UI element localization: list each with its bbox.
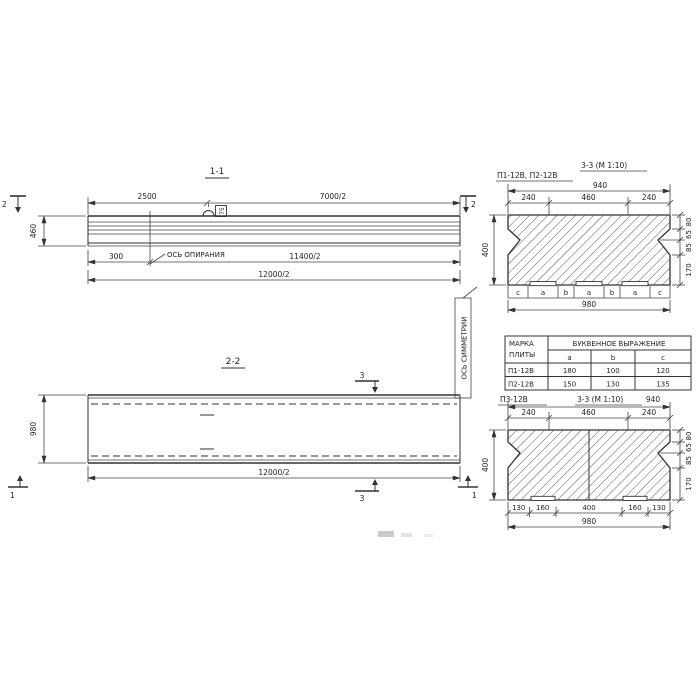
dim-160: 160 (628, 504, 641, 512)
section-title: 3-3 (М 1:10) (581, 161, 627, 170)
dim-support-and-half: 300 11400/2 (88, 250, 460, 266)
dim-240: 240 (642, 408, 657, 417)
dim-beam-height: 460 (29, 216, 86, 246)
dim-460: 460 (581, 408, 596, 417)
lifting-loop: 75 (203, 203, 227, 217)
dim-130: 130 (652, 504, 665, 512)
letter-a: a (541, 289, 545, 297)
dim-full-span: 12000/2 (88, 270, 460, 284)
symmetry-axis: ОСЬ СИММЕТРИИ (455, 287, 477, 398)
cut-label: 1 (10, 491, 15, 500)
dim-400: 400 (481, 243, 490, 258)
dim-940: 940 (646, 395, 661, 404)
dim-980: 980 (582, 300, 597, 309)
dim-460: 460 (581, 193, 596, 202)
dim-80: 80 (685, 432, 693, 441)
cut-mark-1-right: 1 (458, 475, 478, 500)
cell-b: 100 (606, 367, 619, 375)
section-1-1-view: 1-1 2 2 2500 7000/2 7 (2, 167, 476, 284)
letter-b: b (564, 289, 569, 297)
dim-980: 980 (582, 517, 597, 526)
bottom-groove (531, 496, 555, 500)
dim-12000-2: 12000/2 (258, 468, 289, 477)
table-subheader-c: c (661, 354, 665, 362)
dim-bottom-980: 980 (508, 300, 670, 313)
symmetry-axis-label: ОСЬ СИММЕТРИИ (461, 316, 469, 379)
letter-b: b (610, 289, 615, 297)
cut-label: 3 (360, 494, 365, 503)
table-subheader-a: a (567, 354, 571, 362)
cut-mark-2-right: 2 (460, 196, 476, 213)
cut-mark-2-left: 2 (2, 196, 26, 213)
bottom-groove (576, 282, 602, 286)
dim-2500: 2500 (137, 192, 156, 201)
cut-label: 1 (472, 491, 477, 500)
dim-80: 80 (685, 218, 693, 227)
cell-c: 135 (656, 381, 669, 389)
dim-top-segments: 240 460 240 (505, 193, 673, 215)
dim-980: 980 (29, 422, 38, 437)
letter-a: a (633, 289, 637, 297)
cut-mark-3-bottom: 3 (355, 479, 379, 503)
cell-mark: П2-12В (508, 381, 534, 389)
section-title: 3-3 (М 1:10) (577, 395, 623, 404)
section-2-2-title: 2-2 (226, 357, 241, 367)
dim-400: 400 (481, 458, 490, 473)
dim-940: 940 (593, 181, 608, 190)
cell-a: 150 (563, 381, 576, 389)
letter-a: a (587, 289, 591, 297)
dim-top-segments: 240 460 240 (505, 408, 673, 430)
dim-240: 240 (521, 193, 536, 202)
dim-bottom-980: 980 (508, 517, 670, 527)
dim-11400-2: 11400/2 (289, 252, 320, 261)
dim-plate-width: 980 (29, 395, 86, 463)
loop-tag: 75 (219, 207, 226, 215)
dim-170: 170 (685, 477, 693, 490)
cut-label: 2 (471, 200, 476, 209)
marks-table: МАРКА ПЛИТЫ БУКВЕННОЕ ВЫРАЖЕНИЕ a b c П1… (505, 336, 691, 390)
dim-400: 400 (582, 504, 595, 512)
table-subheader-b: b (611, 354, 616, 362)
blueprint-canvas: 1-1 2 2 2500 7000/2 7 (0, 0, 700, 700)
bottom-groove (622, 282, 648, 286)
section-3-3-lower: П3-12В 3-3 (М 1:10) 940 240 460 240 (481, 395, 693, 530)
marks-label: П1-12В, П2-12В (497, 171, 557, 180)
table-row: П1-12В 180 100 120 (508, 367, 670, 375)
table-header-span: БУКВЕННОЕ ВЫРАЖЕНИЕ (573, 340, 666, 348)
bottom-groove (530, 282, 556, 286)
cross-section-body (508, 215, 670, 285)
cut-mark-3-top: 3 (355, 371, 379, 393)
print-artifact (378, 531, 433, 537)
table-header-col1-line2: ПЛИТЫ (509, 351, 535, 359)
table-header-col1-line1: МАРКА (509, 340, 534, 348)
table-row: П2-12В 150 130 135 (508, 381, 670, 389)
dim-plan-span: 12000/2 (88, 466, 460, 482)
dim-85: 85 (685, 456, 693, 465)
dim-130: 130 (512, 504, 525, 512)
dim-height-400: 400 (481, 430, 506, 500)
dim-height-400: 400 (481, 215, 506, 285)
dim-160: 160 (536, 504, 549, 512)
cell-mark: П1-12В (508, 367, 534, 375)
support-axis: ОСЬ ОПИРАНИЯ (150, 211, 225, 266)
cut-label: 3 (360, 371, 365, 380)
letter-c: c (658, 289, 662, 297)
dim-top-span: 2500 7000/2 (88, 192, 460, 215)
mark-label: П3-12В (500, 395, 528, 404)
cell-b: 130 (606, 381, 619, 389)
dim-65: 65 (685, 443, 693, 452)
section-1-1-title: 1-1 (210, 167, 225, 177)
cell-c: 120 (656, 367, 669, 375)
beam-elevation (88, 216, 460, 246)
plate-plan (88, 395, 460, 463)
bottom-groove (623, 496, 647, 500)
technical-drawing: 1-1 2 2 2500 7000/2 7 (0, 0, 700, 700)
dim-170: 170 (685, 263, 693, 276)
support-axis-label: ОСЬ ОПИРАНИЯ (167, 251, 225, 259)
dim-300: 300 (109, 252, 124, 261)
letter-row: c a b a b a c (508, 286, 670, 298)
section-2-2-view: 2-2 3 3 (8, 357, 478, 503)
dim-12000-2: 12000/2 (258, 270, 289, 279)
dim-460: 460 (29, 224, 38, 239)
section-3-3-upper: П1-12В, П2-12В 3-3 (М 1:10) 940 240 460 … (481, 161, 693, 313)
cut-mark-1-left: 1 (8, 475, 28, 500)
dim-7000-2: 7000/2 (320, 192, 347, 201)
dim-240: 240 (642, 193, 657, 202)
cut-label: 2 (2, 200, 7, 209)
dim-240: 240 (521, 408, 536, 417)
cell-a: 180 (563, 367, 576, 375)
dim-85: 85 (685, 243, 693, 252)
letter-c: c (516, 289, 520, 297)
dim-65: 65 (685, 230, 693, 239)
